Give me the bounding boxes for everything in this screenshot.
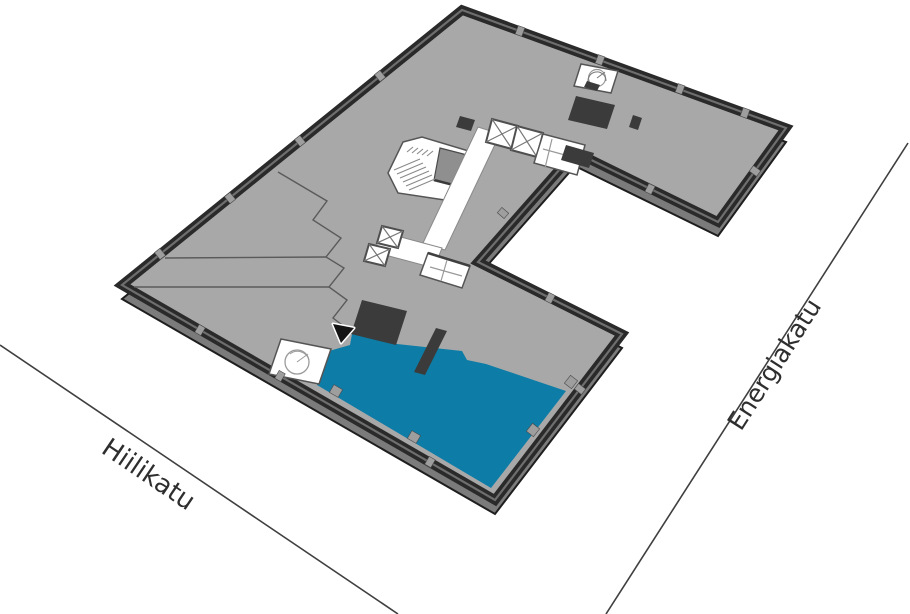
floorplan-viewport: Hiilikatu Energiakatu <box>0 0 910 614</box>
street-label-energiakatu: Energiakatu <box>722 293 827 435</box>
floorplan-canvas: Hiilikatu Energiakatu <box>0 0 910 614</box>
